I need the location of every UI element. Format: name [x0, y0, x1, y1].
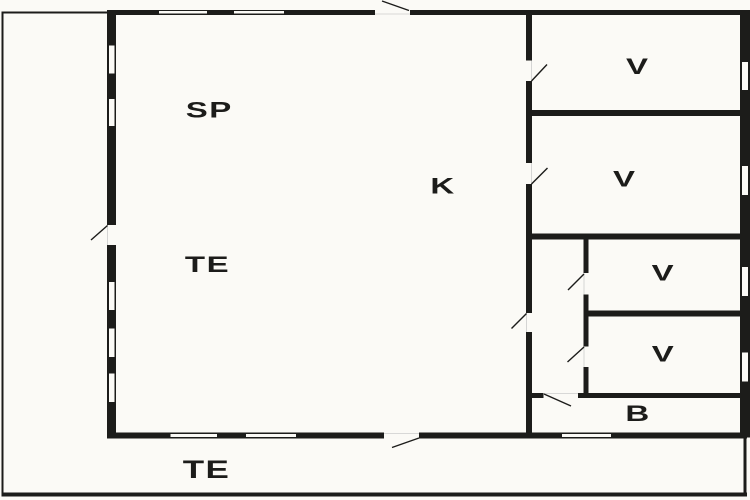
svg-text:B: B [625, 401, 650, 425]
svg-text:TE: TE [183, 456, 231, 484]
svg-text:K: K [430, 174, 455, 198]
svg-text:TE: TE [185, 253, 230, 277]
svg-text:V: V [652, 342, 676, 366]
svg-text:V: V [652, 261, 676, 285]
svg-text:SP: SP [186, 98, 233, 122]
svg-text:V: V [626, 54, 650, 78]
svg-text:V: V [613, 167, 637, 191]
